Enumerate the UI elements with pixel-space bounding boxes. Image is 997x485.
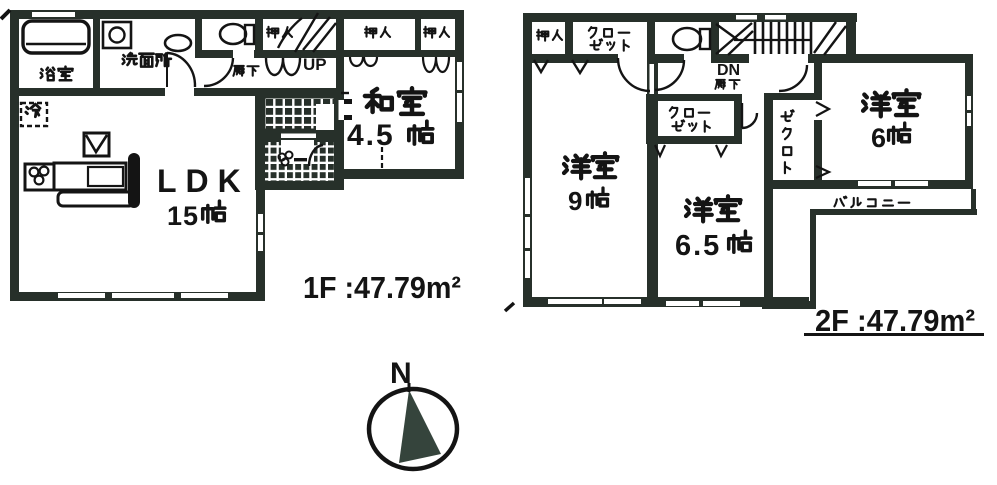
svg-text:6.5: 6.5 xyxy=(675,230,721,262)
svg-text:4.5: 4.5 xyxy=(347,119,395,152)
svg-text:UP: UP xyxy=(303,55,327,74)
svg-text:6: 6 xyxy=(871,123,886,153)
svg-text:LDK: LDK xyxy=(157,163,250,199)
svg-text:N: N xyxy=(390,357,412,390)
svg-text:9: 9 xyxy=(568,186,582,216)
svg-text:1F :47.79m²: 1F :47.79m² xyxy=(303,270,461,305)
svg-text:15: 15 xyxy=(167,201,199,231)
svg-text:2F :47.79m²: 2F :47.79m² xyxy=(815,303,975,338)
svg-text:DN: DN xyxy=(717,62,740,79)
